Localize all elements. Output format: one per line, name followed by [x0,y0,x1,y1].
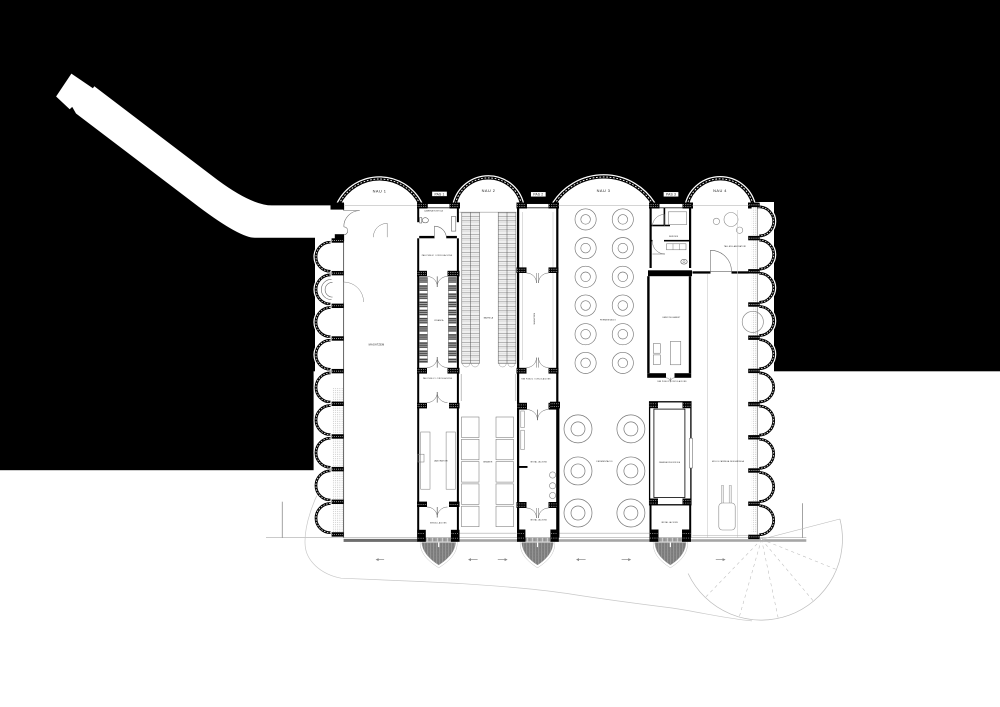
svg-text:PAS 2: PAS 2 [533,193,543,197]
svg-text:MOLLS CARREGA DESCARREGA: MOLLS CARREGA DESCARREGA [712,460,745,463]
svg-text:NAU 2: NAU 2 [482,188,496,193]
svg-text:CAMBRA RUSTICA: CAMBRA RUSTICA [424,210,443,213]
svg-text:FERMENTACIO: FERMENTACIO [600,319,616,322]
svg-text:PAS PUBLIC I CIRCULACIONS: PAS PUBLIC I CIRCULACIONS [521,378,551,381]
svg-text:MAGATZEM: MAGATZEM [533,312,536,324]
svg-text:PAS PUBLIC I CIRCULACIONS: PAS PUBLIC I CIRCULACIONS [657,380,687,383]
svg-text:INSTAL.LACIONS: INSTAL.LACIONS [530,518,547,521]
svg-text:INSTAL.LACIONS: INSTAL.LACIONS [661,521,678,524]
svg-text:TALLER-LABORATORI: TALLER-LABORATORI [724,245,747,248]
svg-text:INSTAL.LACIONS: INSTAL.LACIONS [430,521,447,524]
svg-text:CRIANCA: CRIANCA [434,319,444,322]
svg-text:NAU 4: NAU 4 [713,188,727,193]
svg-text:BARRICA: BARRICA [484,317,494,320]
svg-text:PAS PUBLIC I CIRCULACIONS: PAS PUBLIC I CIRCULACIONS [422,254,453,257]
svg-text:FERMENTACIO: FERMENTACIO [596,460,612,463]
svg-text:INSTAL.LACIONS: INSTAL.LACIONS [530,460,547,463]
svg-text:CAMBRA FRIGORIFICA: CAMBRA FRIGORIFICA [659,461,681,464]
svg-text:PAS 3: PAS 3 [666,193,676,197]
svg-text:NAU 1: NAU 1 [373,188,387,193]
svg-text:PAS 1: PAS 1 [434,192,444,196]
svg-text:SERVEIS: SERVEIS [669,236,679,238]
svg-text:MAGATZEM: MAGATZEM [369,343,385,347]
svg-text:PAS PUBLIC I CIRCULACIONS: PAS PUBLIC I CIRCULACIONS [423,377,453,380]
svg-text:GRANER: GRANER [483,461,493,464]
svg-text:LABORATORI: LABORATORI [434,459,449,462]
svg-text:EMBOTELLAMENT: EMBOTELLAMENT [663,316,682,319]
svg-text:NAU 3: NAU 3 [597,188,611,193]
